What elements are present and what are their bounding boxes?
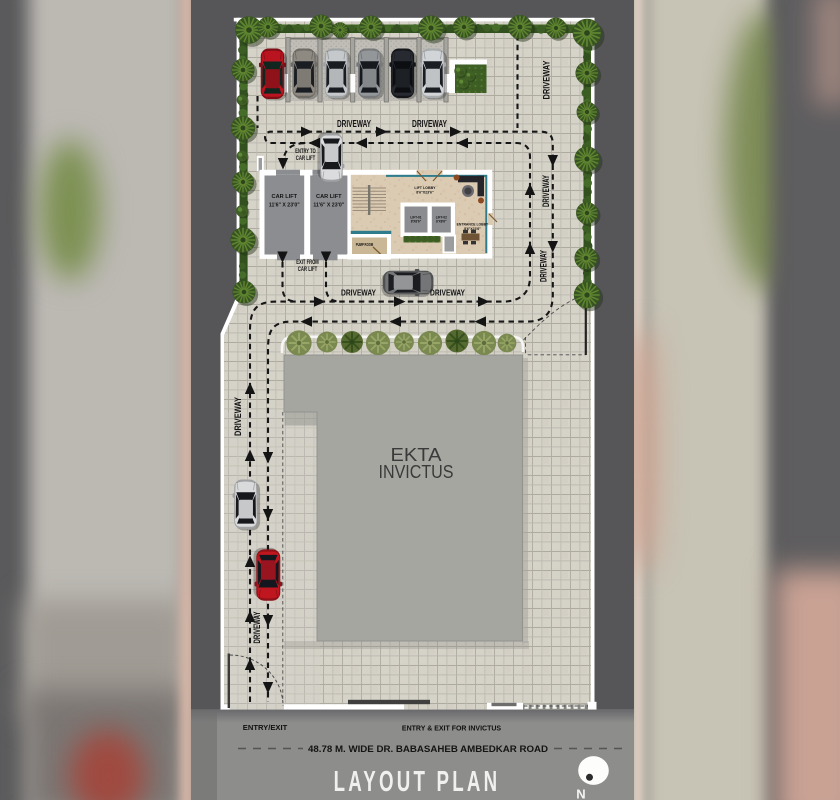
svg-text:DRIVEWAY: DRIVEWAY [233,396,244,436]
svg-text:LIFT LOBBY: LIFT LOBBY [414,186,436,190]
svg-text:DRIVEWAY: DRIVEWAY [539,250,550,282]
svg-text:DRIVEWAY: DRIVEWAY [542,60,553,100]
svg-text:48.78 M. WIDE DR. BABASAHEB: 48.78 M. WIDE DR. BABASAHEB AMBEDKAR ROA… [308,744,548,755]
svg-text:EXIT FROM: EXIT FROM [296,259,319,266]
svg-text:8'6"X23'6": 8'6"X23'6" [464,227,481,231]
svg-text:8'X8'6": 8'X8'6" [411,220,422,224]
svg-text:CAR LIFT: CAR LIFT [272,194,298,200]
svg-text:ENTRY/EXIT: ENTRY/EXIT [243,723,288,732]
svg-text:11'6" X 23'0": 11'6" X 23'0" [269,203,300,209]
svg-text:DRIVEWAY: DRIVEWAY [412,118,447,130]
svg-text:11'6" X 23'0": 11'6" X 23'0" [313,203,344,209]
svg-text:8'6"X23'6": 8'6"X23'6" [416,191,434,195]
svg-text:DRIVEWAY: DRIVEWAY [430,288,465,298]
svg-text:LAYOUT PLAN: LAYOUT PLAN [334,766,501,798]
svg-text:DRIVEWAY: DRIVEWAY [341,288,376,298]
svg-text:DRIVEWAY: DRIVEWAY [252,611,263,643]
svg-text:CAR LIFT: CAR LIFT [296,155,316,162]
svg-text:DRIVEWAY: DRIVEWAY [337,118,371,130]
svg-text:ENTRY TO: ENTRY TO [295,148,316,155]
svg-text:PUMP ROOM: PUMP ROOM [356,242,374,247]
svg-text:N: N [576,787,585,800]
svg-text:DRIVEWAY: DRIVEWAY [541,175,552,207]
svg-text:ENTRANCE LOBBY: ENTRANCE LOBBY [457,223,489,227]
svg-text:INVICTUS: INVICTUS [379,462,454,482]
svg-text:ENTRY & EXIT FOR INVICTUS: ENTRY & EXIT FOR INVICTUS [402,726,502,733]
svg-text:CAR LIFT: CAR LIFT [316,194,342,200]
svg-text:8'X8'6": 8'X8'6" [436,220,447,224]
svg-text:CAR LIFT: CAR LIFT [298,266,318,273]
